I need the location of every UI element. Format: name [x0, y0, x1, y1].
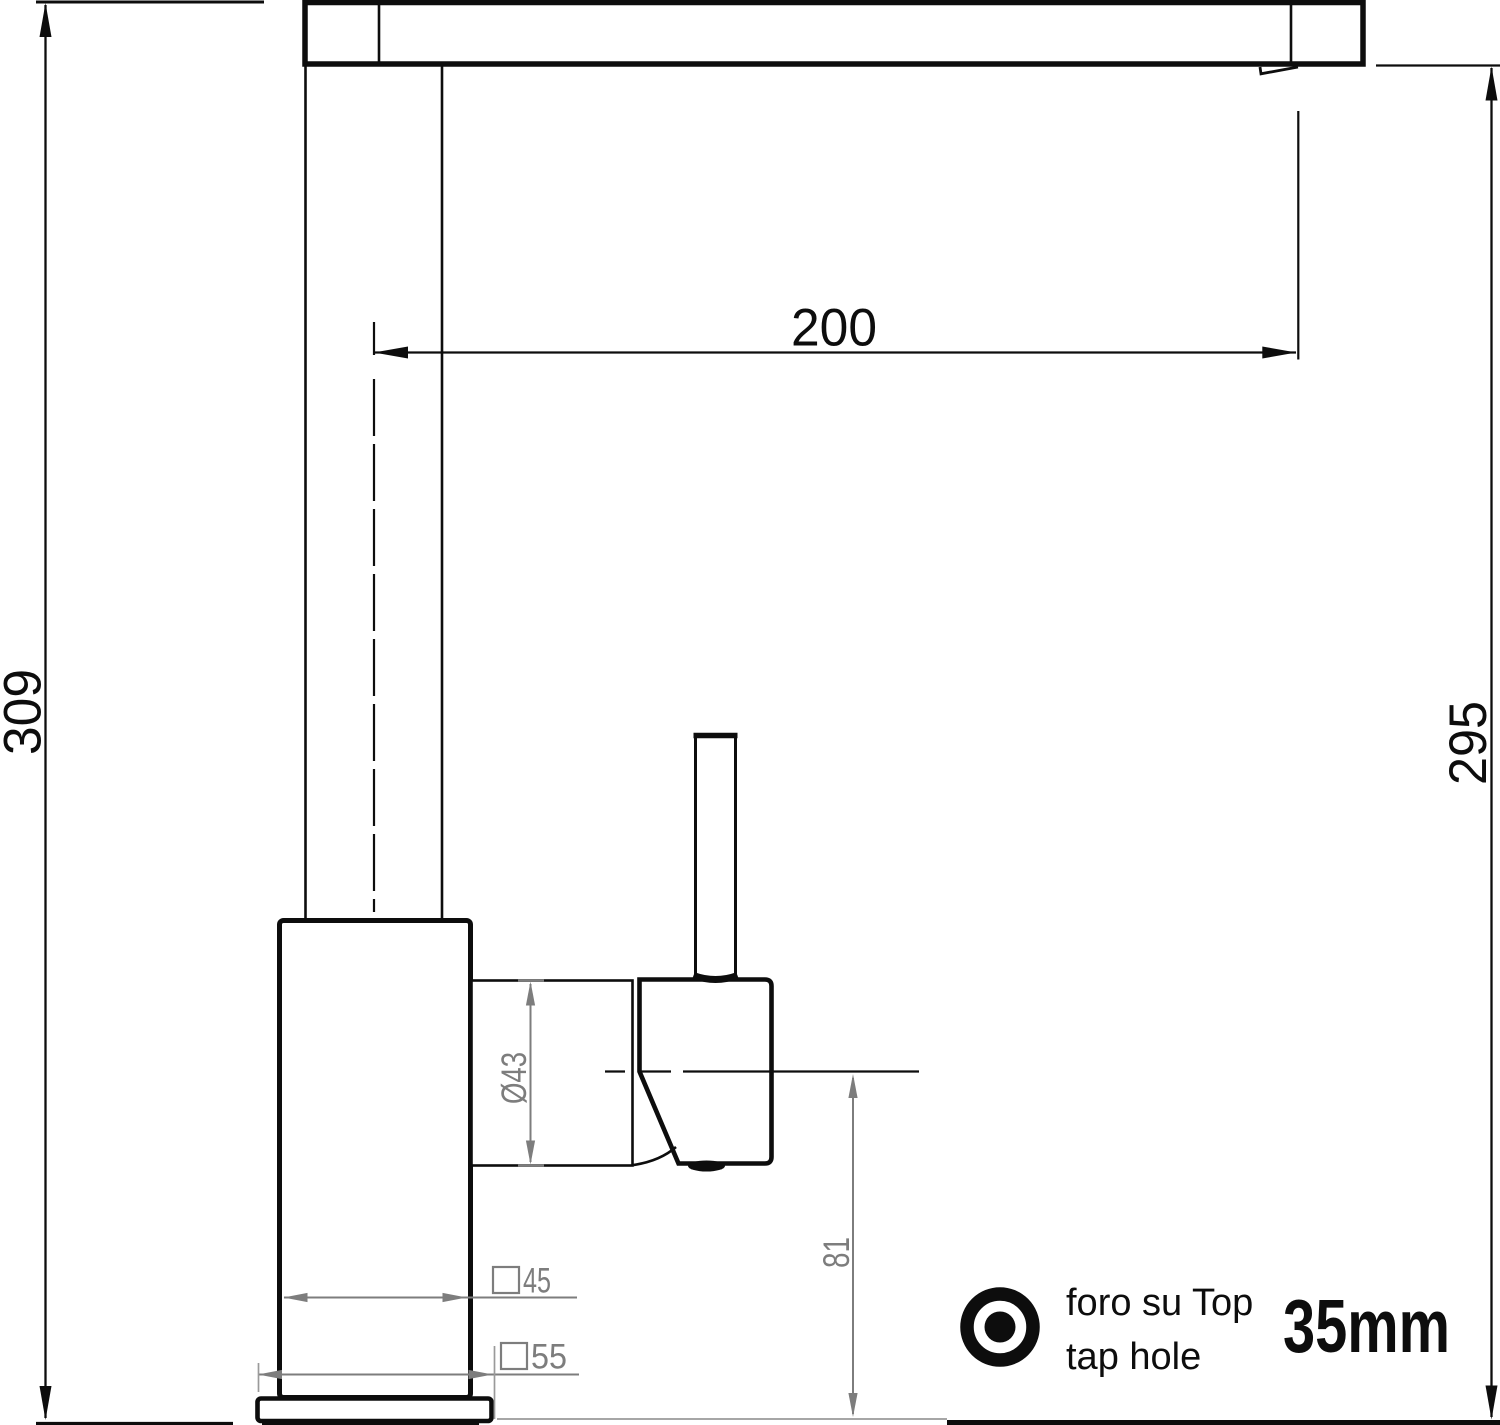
svg-text:309: 309 [0, 669, 53, 755]
svg-text:foro su Top: foro su Top [1066, 1282, 1253, 1324]
svg-text:81: 81 [816, 1237, 857, 1268]
svg-text:200: 200 [791, 299, 877, 358]
svg-text:45: 45 [523, 1262, 551, 1301]
svg-text:Ø43: Ø43 [495, 1052, 534, 1104]
svg-text:35mm: 35mm [1283, 1284, 1450, 1368]
svg-text:295: 295 [1439, 701, 1498, 785]
svg-text:55: 55 [531, 1338, 567, 1377]
svg-text:tap hole: tap hole [1066, 1336, 1201, 1378]
